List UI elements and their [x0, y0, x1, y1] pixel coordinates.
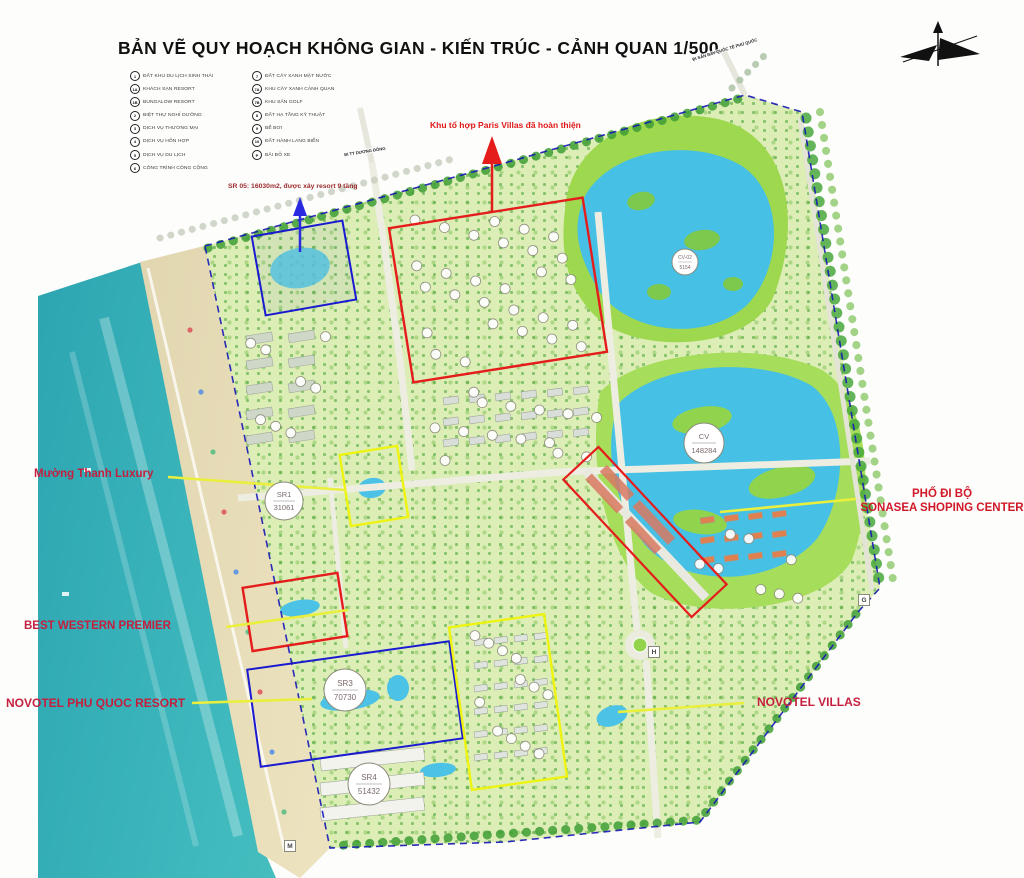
plot-dot [744, 534, 754, 544]
plot-dot [488, 319, 498, 329]
legend-item: 5DỊCH VỤ DU LỊCH [130, 150, 238, 160]
plot-dot [321, 332, 331, 342]
plot-dot [563, 409, 573, 419]
plot-dot [256, 415, 266, 425]
plot-dot [484, 638, 494, 648]
plot-dot [440, 223, 450, 233]
plot-dot [450, 290, 460, 300]
building-roof [495, 413, 511, 422]
legend-item: 1ĐẤT KHU DU LỊCH SINH THÁI [130, 71, 238, 81]
building-roof [521, 390, 537, 399]
building-roof [514, 726, 528, 734]
building-roof [288, 405, 315, 418]
svg-text:CV: CV [699, 432, 709, 441]
legend-item-label: DỊCH VỤ THƯƠNG MẠI [143, 126, 198, 131]
legend-item-label: KHU SÂN GOLF [265, 100, 303, 105]
building-roof [547, 388, 563, 397]
plot-dot [493, 726, 503, 736]
svg-text:SR4: SR4 [361, 773, 377, 782]
plot-dot [553, 448, 563, 458]
building-roof [246, 382, 273, 395]
legend-key-badge: 2 [130, 111, 140, 121]
plot-dot [471, 276, 481, 286]
plot-dot [412, 261, 422, 271]
plot-dot [543, 690, 553, 700]
legend-item-label: CÔNG TRÌNH CÔNG CỘNG [143, 166, 208, 171]
legend-key-badge: 10 [252, 137, 262, 147]
legend-item: 3DỊCH VỤ THƯƠNG MẠI [130, 124, 238, 134]
legend-item: 6CÔNG TRÌNH CÔNG CỘNG [130, 163, 238, 173]
plot-dot [534, 749, 544, 759]
building-roof [469, 415, 485, 424]
label-novotel-villas: NOVOTEL VILLAS [757, 695, 861, 709]
plot-dot [475, 697, 485, 707]
legend-key-badge: 6 [130, 163, 140, 173]
legend-item-label: BIỆT THỰ NGHỈ DƯỠNG [143, 113, 202, 118]
legend-column-1: 1ĐẤT KHU DU LỊCH SINH THÁI1AKHÁCH SẠN RE… [130, 71, 238, 173]
plot-dot [592, 413, 602, 423]
annotation-paris-villas: Khu tổ hợp Paris Villas đã hoàn thiện [430, 120, 581, 130]
plot-dot [568, 320, 578, 330]
plot-dot [311, 383, 321, 393]
legend-key-badge: 3 [130, 124, 140, 134]
building-roof [534, 701, 548, 709]
building-roof [474, 661, 488, 669]
legend-key-badge: 1 [130, 71, 140, 81]
plot-dot [793, 593, 803, 603]
marker-sr4: SR4 51432 [348, 763, 390, 805]
plot-dot [506, 401, 516, 411]
building-roof [474, 684, 488, 692]
building-roof [495, 392, 511, 401]
plot-dot [470, 631, 480, 641]
legend-key-badge: 7 [252, 71, 262, 81]
plot-dot [537, 267, 547, 277]
legend-item-label: ĐẤT KHU DU LỊCH SINH THÁI [143, 74, 213, 79]
legend-item-label: ĐẤT HẠ TẦNG KỸ THUẬT [265, 113, 325, 118]
plot-dot [459, 427, 469, 437]
plot-dot [566, 275, 576, 285]
legend-item: 10ĐẤT HÀNH LANG BIỂN [252, 137, 360, 147]
plot-dot [420, 282, 430, 292]
building-roof [288, 330, 315, 343]
blue-arrow-head [293, 197, 307, 216]
plot-dot [786, 555, 796, 565]
building-roof [534, 724, 548, 732]
legend-item-label: ĐẤT CÂY XANH MẶT NƯỚC [265, 74, 331, 79]
plot-dot [528, 246, 538, 256]
plot-dot [477, 398, 487, 408]
marker-sr1: SR1 31061 [265, 482, 303, 520]
building-roof [474, 730, 488, 738]
plot-dot [517, 326, 527, 336]
plot-dot [490, 217, 500, 227]
label-pho-di-bo-line2: SONASEA SHOPING CENTER [860, 501, 1024, 515]
legend-item: 8ĐẤT HẠ TẦNG KỸ THUẬT [252, 111, 360, 121]
svg-text:51432: 51432 [358, 787, 381, 796]
building-roof [443, 438, 459, 447]
plot-dot [516, 434, 526, 444]
building-roof [246, 432, 273, 445]
boundary-corner-g: G [858, 594, 870, 606]
legend-item: 1BBUNGALOW RESORT [130, 97, 238, 107]
legend-item-label: KHU CÂY XANH CẢNH QUAN [265, 87, 335, 92]
plot-dot [479, 297, 489, 307]
svg-text:SR1: SR1 [277, 490, 292, 499]
marker-cv: CV 148284 [684, 423, 724, 463]
building-roof [573, 407, 589, 416]
legend: 1ĐẤT KHU DU LỊCH SINH THÁI1AKHÁCH SẠN RE… [130, 71, 360, 173]
label-pho-di-bo-line1: PHỐ ĐI BỘ [860, 487, 1024, 501]
zone-novotel-villas-yellow [449, 614, 567, 790]
building-roof [288, 355, 315, 368]
legend-key-badge: 5 [130, 150, 140, 160]
legend-key-badge: 1A [130, 84, 140, 94]
page-title: BẢN VẼ QUY HOẠCH KHÔNG GIAN - KIẾN TRÚC … [118, 38, 678, 59]
legend-item: 1AKHÁCH SẠN RESORT [130, 84, 238, 94]
plot-dot [515, 675, 525, 685]
plot-dot [500, 284, 510, 294]
svg-text:70730: 70730 [334, 693, 357, 702]
legend-item: 2BIỆT THỰ NGHỈ DƯỠNG [130, 111, 238, 121]
building-roof [494, 682, 508, 690]
building-roof [443, 417, 459, 426]
annotation-sr05: SR 05: 16030m2, được xây resort 9 tầng [228, 183, 358, 190]
plot-dot [519, 224, 529, 234]
plot-dot [286, 428, 296, 438]
legend-key-badge: 4 [130, 137, 140, 147]
plot-dot [469, 230, 479, 240]
plot-dot [534, 405, 544, 415]
legend-item-label: KHÁCH SẠN RESORT [143, 87, 195, 92]
building-roof [573, 386, 589, 395]
legend-item: 7AKHU CÂY XANH CẢNH QUAN [252, 84, 360, 94]
plot-dot [498, 646, 508, 656]
legend-key-badge: P [252, 150, 262, 160]
plot-dot [511, 653, 521, 663]
plot-dot [725, 529, 735, 539]
plot-dot [529, 682, 539, 692]
red-arrow-head [482, 136, 502, 164]
building-roof [494, 751, 508, 759]
label-muong-thanh-luxury: Mường Thanh Luxury [34, 468, 153, 480]
plot-dot [246, 338, 256, 348]
plot-dot [487, 430, 497, 440]
legend-item: 9BỂ BƠI [252, 124, 360, 134]
building-roof [521, 411, 537, 420]
building-roof [246, 357, 273, 370]
building-roof [534, 655, 548, 663]
legend-item-label: DỊCH VỤ HỖN HỢP [143, 139, 189, 144]
plot-dot [506, 734, 516, 744]
compass-icon [900, 21, 980, 66]
plot-dot [549, 232, 559, 242]
boat-icon [62, 592, 69, 596]
boundary-corner-m: M [284, 840, 296, 852]
legend-item-label: ĐẤT HÀNH LANG BIỂN [265, 139, 319, 144]
boundary-corner-h: H [648, 646, 660, 658]
plot-dot [271, 421, 281, 431]
label-novotel-phu-quoc-resort: NOVOTEL PHU QUOC RESORT [6, 696, 185, 710]
plot-dot [422, 328, 432, 338]
plot-dot [498, 238, 508, 248]
legend-key-badge: 1B [130, 97, 140, 107]
building-roof [494, 705, 508, 713]
plot-dot [296, 377, 306, 387]
building-roof [474, 707, 488, 715]
plot-dot [756, 585, 766, 595]
legend-item: 7BKHU SÂN GOLF [252, 97, 360, 107]
plot-dot [557, 253, 567, 263]
svg-text:CV-02: CV-02 [678, 255, 692, 261]
plot-dot [469, 387, 479, 397]
building-roof [573, 428, 589, 437]
label-best-western-premier: BEST WESTERN PREMIER [24, 620, 171, 632]
svg-text:31061: 31061 [274, 503, 295, 512]
plot-dot [441, 268, 451, 278]
legend-column-2: 7ĐẤT CÂY XANH MẶT NƯỚC7AKHU CÂY XANH CẢN… [252, 71, 360, 173]
wave-streaks [62, 268, 285, 852]
legend-item-label: BỂ BƠI [265, 126, 282, 131]
svg-text:148284: 148284 [691, 446, 716, 455]
marker-sr3: SR3 70730 [324, 669, 366, 711]
legend-item: 4DỊCH VỤ HỖN HỢP [130, 137, 238, 147]
svg-text:5154: 5154 [679, 265, 690, 271]
golf-course-east [596, 353, 865, 609]
plot-dot [576, 342, 586, 352]
leader-novotel-villas [618, 703, 744, 712]
legend-key-badge: 7B [252, 97, 262, 107]
legend-key-badge: 8 [252, 111, 262, 121]
building-roof [443, 396, 459, 405]
building-roof [469, 436, 485, 445]
plot-dot [430, 423, 440, 433]
plot-dot [545, 438, 555, 448]
building-roof [547, 409, 563, 418]
building-roof [494, 636, 508, 644]
leader-muong-thanh [168, 477, 345, 490]
building-roof [514, 703, 528, 711]
zone-sr05-blue [252, 221, 356, 316]
label-pho-di-bo-sonasea: PHỐ ĐI BỘ SONASEA SHOPING CENTER [860, 487, 1024, 516]
legend-item-label: BUNGALOW RESORT [143, 100, 195, 105]
plot-dot [520, 741, 530, 751]
legend-item: 7ĐẤT CÂY XANH MẶT NƯỚC [252, 71, 360, 81]
legend-key-badge: 7A [252, 84, 262, 94]
svg-text:SR3: SR3 [337, 679, 353, 688]
plot-dot [431, 349, 441, 359]
plot-dot [538, 313, 548, 323]
building-roof [514, 634, 528, 642]
site-plan-canvas: SR1 31061 SR3 70730 SR4 51432 CV 148284 [0, 0, 1024, 878]
plot-dot [547, 334, 557, 344]
plot-dot [440, 456, 450, 466]
plot-dot [460, 357, 470, 367]
legend-item-label: BÃI ĐỖ XE [265, 153, 290, 158]
plot-dot [774, 589, 784, 599]
plot-dot [261, 345, 271, 355]
building-roof [474, 753, 488, 761]
marker-cv02: CV-02 5154 [672, 249, 698, 275]
plot-dot [509, 305, 519, 315]
legend-key-badge: 9 [252, 124, 262, 134]
building-roof [494, 659, 508, 667]
legend-item-label: DỊCH VỤ DU LỊCH [143, 153, 186, 158]
